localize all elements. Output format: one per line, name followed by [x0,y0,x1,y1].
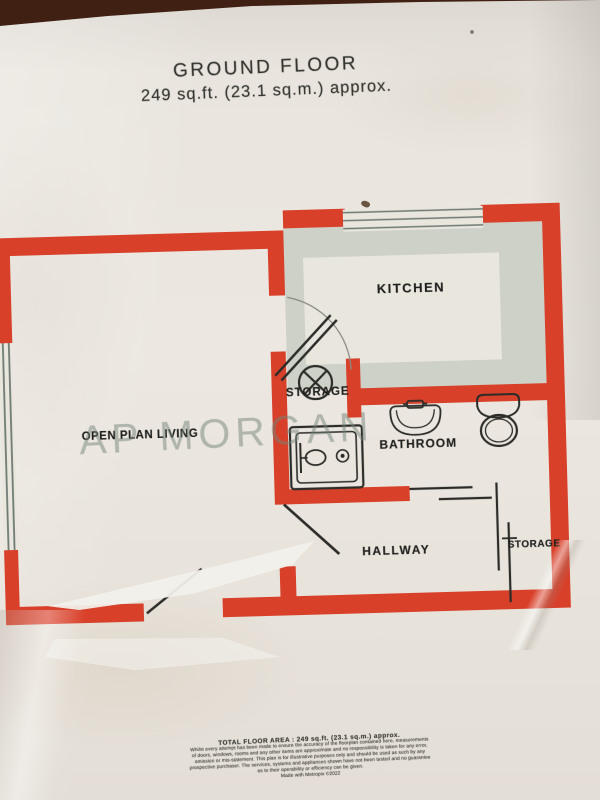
room-label-storage-center: STORAGE [286,386,350,400]
floorplan-photo: GROUND FLOOR 249 sq.ft. (23.1 sq.m.) app… [0,0,600,800]
room-label-storage-right: STORAGE [508,538,561,550]
footer-block: TOTAL FLOOR AREA : 249 sq.ft. (23.1 sq.m… [109,727,511,788]
sheet-content: GROUND FLOOR 249 sq.ft. (23.1 sq.m.) app… [0,0,600,800]
kitchen-door-swing [273,296,351,381]
kitchen-window-glazing [343,206,484,232]
bathroom-opening-lines [410,487,492,500]
room-label-hallway: HALLWAY [362,542,430,558]
plan-title-block: GROUND FLOOR 249 sq.ft. (23.1 sq.m.) app… [85,49,447,108]
living-window-glazing [0,343,18,550]
toilet-icon [477,394,520,447]
room-label-kitchen: KITCHEN [377,279,446,296]
hallway-door-swing [284,503,339,555]
entrance-door-swing [146,569,203,614]
